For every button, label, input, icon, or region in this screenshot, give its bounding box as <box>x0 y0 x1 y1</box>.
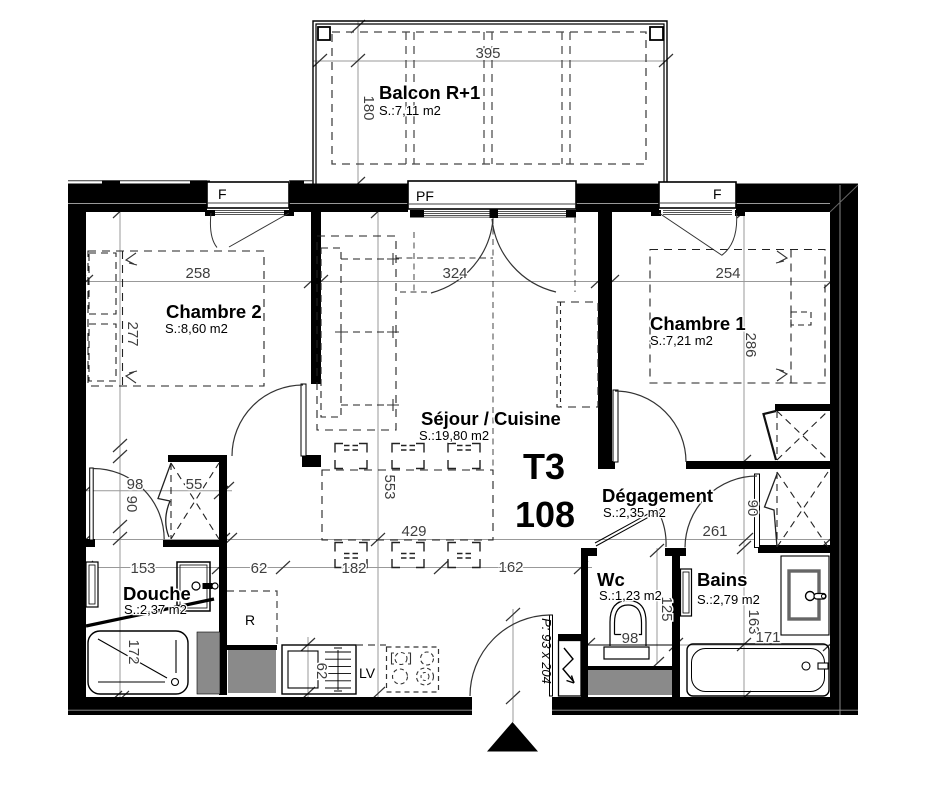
svg-text:Séjour / Cuisine: Séjour / Cuisine <box>421 408 561 429</box>
svg-text:S.:8,60 m2: S.:8,60 m2 <box>165 321 228 336</box>
svg-text:S.:2,37 m2: S.:2,37 m2 <box>124 602 187 617</box>
svg-text:S.:7,11 m2: S.:7,11 m2 <box>379 103 441 118</box>
svg-text:553: 553 <box>381 474 398 499</box>
svg-text:395: 395 <box>475 45 500 62</box>
svg-text:261: 261 <box>702 523 727 540</box>
svg-text:55: 55 <box>186 476 203 493</box>
svg-text:P: 93 x 204: P: 93 x 204 <box>539 618 554 684</box>
svg-text:90: 90 <box>123 496 140 513</box>
svg-text:429: 429 <box>401 523 426 540</box>
svg-text:277: 277 <box>124 321 141 346</box>
svg-text:Wc: Wc <box>597 569 625 590</box>
svg-text:S.:2,35 m2: S.:2,35 m2 <box>603 505 666 520</box>
svg-text:LV: LV <box>359 665 376 681</box>
svg-text:S.:7,21 m2: S.:7,21 m2 <box>650 333 713 348</box>
svg-text:125: 125 <box>658 596 675 621</box>
svg-text:S.:2,79 m2: S.:2,79 m2 <box>697 592 760 607</box>
svg-text:Balcon R+1: Balcon R+1 <box>379 82 480 103</box>
svg-text:Bains: Bains <box>697 569 747 590</box>
svg-text:254: 254 <box>715 265 740 282</box>
svg-text:R: R <box>245 612 255 628</box>
svg-text:98: 98 <box>127 476 144 493</box>
svg-text:172: 172 <box>125 639 142 664</box>
svg-text:180: 180 <box>360 95 377 120</box>
svg-text:162: 162 <box>498 559 523 576</box>
svg-text:153: 153 <box>130 560 155 577</box>
svg-text:Douche: Douche <box>123 583 191 604</box>
svg-text:Dégagement: Dégagement <box>602 485 713 506</box>
svg-text:108: 108 <box>515 494 575 535</box>
svg-text:286: 286 <box>742 332 759 357</box>
svg-text:171: 171 <box>755 629 780 646</box>
svg-text:182: 182 <box>341 560 366 577</box>
svg-text:Chambre 1: Chambre 1 <box>650 313 746 334</box>
svg-text:90: 90 <box>744 500 761 517</box>
svg-text:F: F <box>218 186 227 202</box>
svg-text:324: 324 <box>442 265 467 282</box>
svg-text:98: 98 <box>622 630 639 647</box>
svg-text:PF: PF <box>416 188 434 204</box>
svg-text:Chambre 2: Chambre 2 <box>166 301 262 322</box>
svg-text:S.:19,80 m2: S.:19,80 m2 <box>419 428 489 443</box>
svg-text:T3: T3 <box>523 446 565 487</box>
svg-text:62: 62 <box>313 663 330 680</box>
svg-text:62: 62 <box>251 560 268 577</box>
svg-text:F: F <box>713 186 722 202</box>
svg-text:S.:1,23 m2: S.:1,23 m2 <box>599 588 662 603</box>
svg-text:258: 258 <box>185 265 210 282</box>
